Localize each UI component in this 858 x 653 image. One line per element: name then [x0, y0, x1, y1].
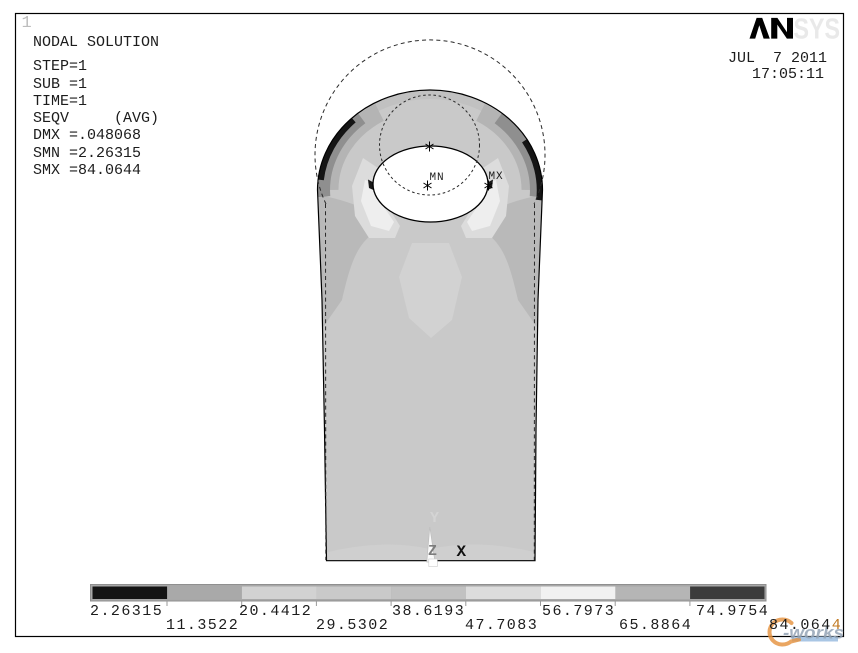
- svg-text:SYS: SYS: [794, 14, 841, 46]
